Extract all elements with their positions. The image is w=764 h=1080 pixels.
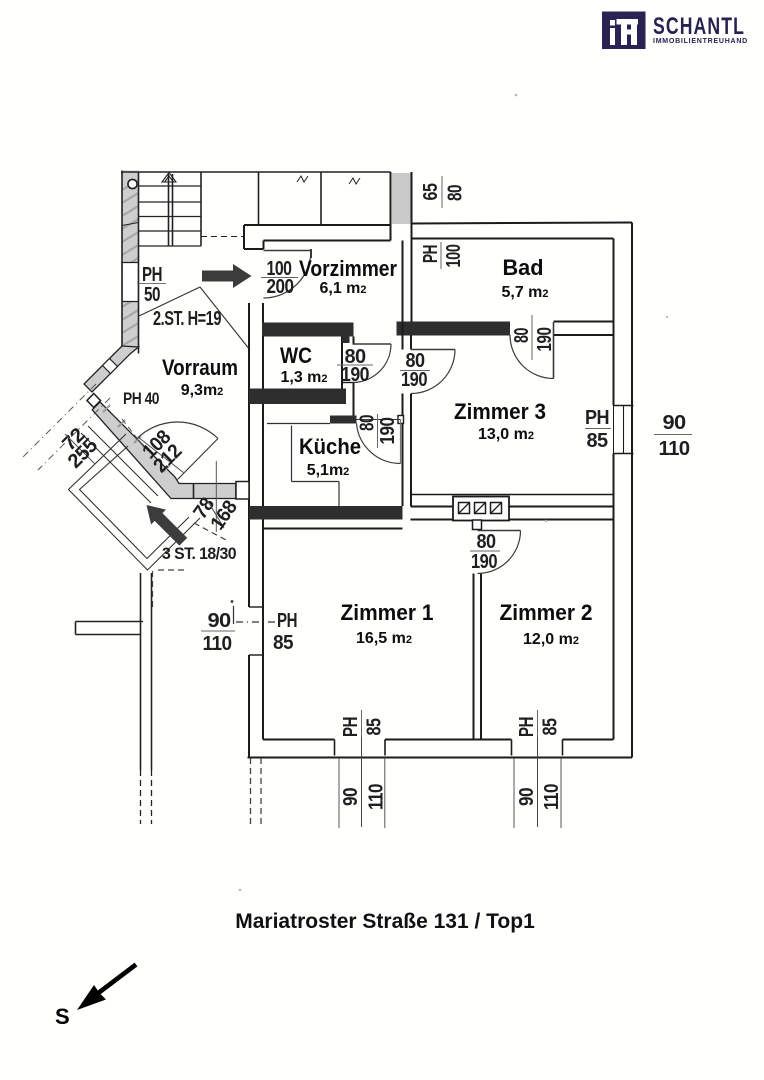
- svg-text:100: 100: [443, 244, 465, 267]
- svg-text:90: 90: [340, 788, 362, 806]
- svg-text:PH: PH: [142, 264, 162, 286]
- svg-text:50: 50: [144, 284, 160, 306]
- svg-text:110: 110: [659, 438, 690, 460]
- svg-text:190: 190: [534, 327, 556, 351]
- svg-text:5,1m2: 5,1m2: [307, 462, 350, 479]
- svg-text:6,1 m2: 6,1 m2: [319, 280, 366, 297]
- svg-text:PH 40: PH 40: [123, 389, 159, 408]
- svg-text:85: 85: [364, 718, 386, 735]
- svg-text:3 ST. 18/30: 3 ST. 18/30: [162, 544, 236, 563]
- svg-text:190: 190: [377, 417, 399, 444]
- svg-text:190: 190: [471, 551, 497, 573]
- svg-text:5,7 m2: 5,7 m2: [501, 284, 548, 301]
- svg-text:PH: PH: [277, 610, 297, 632]
- svg-text:80: 80: [511, 328, 533, 343]
- svg-text:Zimmer 2: Zimmer 2: [500, 600, 593, 625]
- svg-text:Zimmer 1: Zimmer 1: [341, 600, 434, 625]
- svg-text:PH: PH: [585, 407, 609, 429]
- svg-text:13,0 m2: 13,0 m2: [478, 426, 534, 443]
- svg-text:Mariatroster Straße 131 / Top1: Mariatroster Straße 131 / Top1: [235, 910, 535, 933]
- svg-text:110: 110: [541, 784, 563, 810]
- svg-text:65: 65: [420, 183, 442, 200]
- svg-text:80: 80: [445, 185, 467, 201]
- svg-text:90: 90: [663, 412, 687, 434]
- svg-text:200: 200: [267, 276, 294, 298]
- svg-text:PH: PH: [340, 717, 362, 737]
- svg-text:Vorzimmer: Vorzimmer: [299, 256, 397, 281]
- svg-text:90: 90: [208, 610, 232, 632]
- svg-text:Küche: Küche: [299, 434, 361, 459]
- svg-text:16,5 m2: 16,5 m2: [356, 630, 412, 647]
- svg-text:80: 80: [477, 531, 496, 553]
- svg-text:90: 90: [516, 788, 538, 806]
- svg-text:85: 85: [273, 632, 293, 654]
- svg-text:9,3m2: 9,3m2: [181, 382, 224, 399]
- svg-text:80: 80: [357, 415, 379, 431]
- svg-text:S: S: [55, 1004, 70, 1029]
- svg-text:110: 110: [203, 633, 232, 655]
- svg-text:85: 85: [540, 718, 562, 735]
- svg-text:190: 190: [401, 369, 427, 391]
- svg-text:WC: WC: [280, 343, 312, 368]
- svg-text:1,3 m2: 1,3 m2: [280, 369, 327, 386]
- svg-text:85: 85: [587, 430, 608, 452]
- svg-text:190: 190: [341, 364, 369, 386]
- svg-text:Zimmer 3: Zimmer 3: [454, 399, 546, 424]
- svg-text:110: 110: [366, 784, 388, 810]
- svg-text:2.ST. H=19: 2.ST. H=19: [153, 308, 221, 330]
- svg-text:Vorraum: Vorraum: [162, 355, 238, 380]
- svg-text:Bad: Bad: [503, 255, 544, 280]
- svg-text:IMMOBILIENTREUHAND: IMMOBILIENTREUHAND: [653, 36, 748, 45]
- svg-text:PH: PH: [516, 717, 538, 737]
- svg-text:PH: PH: [420, 245, 442, 263]
- svg-text:12,0 m2: 12,0 m2: [523, 631, 579, 648]
